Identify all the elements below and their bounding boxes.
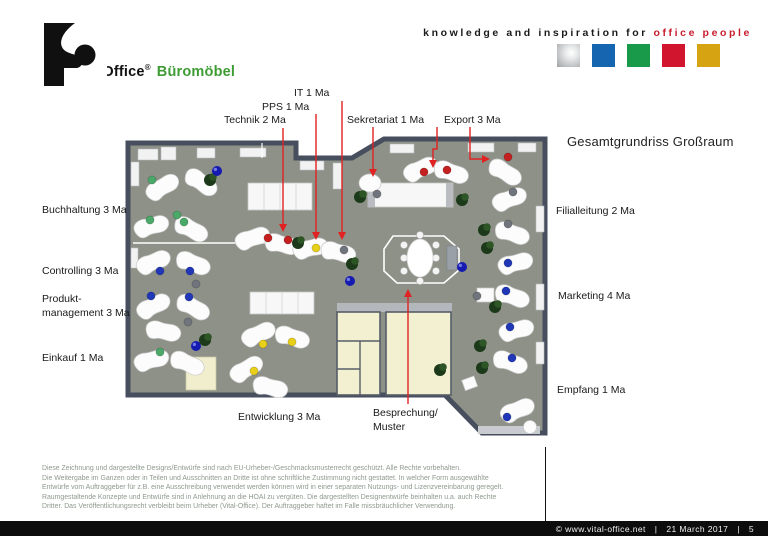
label-produkt-line1: Produkt- (42, 293, 82, 305)
footer-divider-line (545, 447, 546, 521)
label-export: Export 3 Ma (444, 114, 501, 126)
footer-copyright-link[interactable]: © www.vital-office.net (556, 524, 646, 534)
footer-separator: | (737, 524, 740, 534)
vital-office-logo-icon (44, 23, 107, 86)
disclaimer-line: Raumgestaltende Konzepte und Entwürfe si… (42, 493, 542, 503)
label-technik: Technik 2 Ma (224, 114, 286, 126)
label-pps: PPS 1 Ma (262, 101, 309, 113)
legal-disclaimer: Diese Zeichnung und dargestellte Designs… (42, 464, 542, 512)
disclaimer-line: Diese Zeichnung und dargestellte Designs… (42, 464, 542, 474)
label-entwicklung: Entwicklung 3 Ma (238, 411, 320, 423)
footer-bar: © www.vital-office.net | 21 March 2017 |… (0, 521, 768, 536)
page-title: Gesamtgrundriss Großraum (567, 134, 734, 149)
label-einkauf: Einkauf 1 Ma (42, 352, 103, 364)
label-besprechung-line1: Besprechung/ (373, 407, 438, 419)
label-empfang: Empfang 1 Ma (557, 384, 625, 396)
label-it: IT 1 Ma (294, 87, 329, 99)
footer-date: 21 March 2017 (666, 524, 728, 534)
footer-page-number: 5 (749, 524, 754, 534)
footer-separator: | (655, 524, 658, 534)
label-produkt-line2: management 3 Ma (42, 307, 130, 319)
label-sekretariat: Sekretariat 1 Ma (347, 114, 424, 126)
disclaimer-line: Die Weitergabe im Ganzen oder in Teilen … (42, 474, 542, 484)
label-controlling: Controlling 3 Ma (42, 265, 118, 277)
disclaimer-line: Dritter. Das Veröffentlichungsrecht verb… (42, 502, 542, 512)
label-besprechung-line2: Muster (373, 421, 405, 433)
label-filialleitung: Filialleitung 2 Ma (556, 205, 635, 217)
disclaimer-line: Entwürfe vom Auftraggeber für z.B. eine … (42, 483, 542, 493)
label-buchhaltung: Buchhaltung 3 Ma (42, 204, 127, 216)
brochure-page: { "header": { "logo": { "brand": "Vital-… (0, 0, 768, 543)
label-marketing: Marketing 4 Ma (558, 290, 630, 302)
